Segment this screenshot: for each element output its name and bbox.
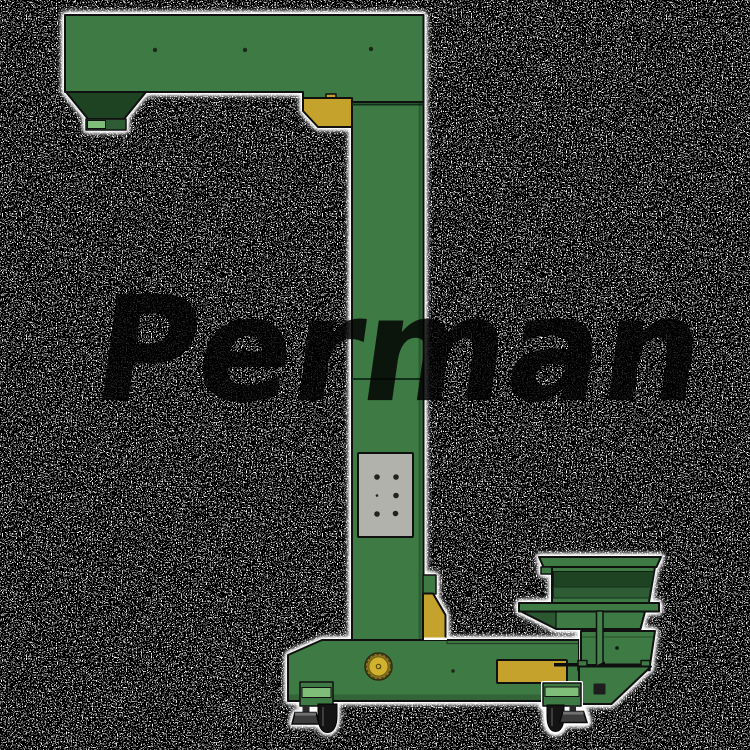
corner-bracket-bottom [423,575,446,640]
bolt-dot [369,47,373,51]
feeder-bottom-tray [579,667,651,705]
bolt-dot [243,48,247,52]
panel-bolt [393,474,399,480]
panel-bolt [374,474,380,480]
hopper-flange [519,603,659,612]
feeder-dot [615,646,619,650]
infeed-hopper [519,557,661,629]
watermark-text: Perman [86,278,713,424]
bracket-stripe [545,687,579,697]
base-dot [451,669,455,673]
top-arm [65,15,424,102]
hopper-lid [539,557,661,567]
bracket-stripe [302,688,331,698]
tray-bolt [594,684,606,695]
corner-bracket-top [303,94,352,127]
bolt-dot [153,48,157,52]
hopper-outlet-left [88,121,106,129]
clamp-bar [554,663,578,667]
discharge-hopper [66,92,146,130]
panel-bolt [374,511,380,517]
product-image: Perman [0,0,750,750]
foot-assembly-right [543,683,587,732]
caster-wheel-left [318,704,337,733]
access-panel [358,453,413,537]
drive-pulley [365,653,392,680]
panel-bolt [376,494,379,497]
panel-bolt [393,493,399,499]
panel-bolt [393,511,399,517]
